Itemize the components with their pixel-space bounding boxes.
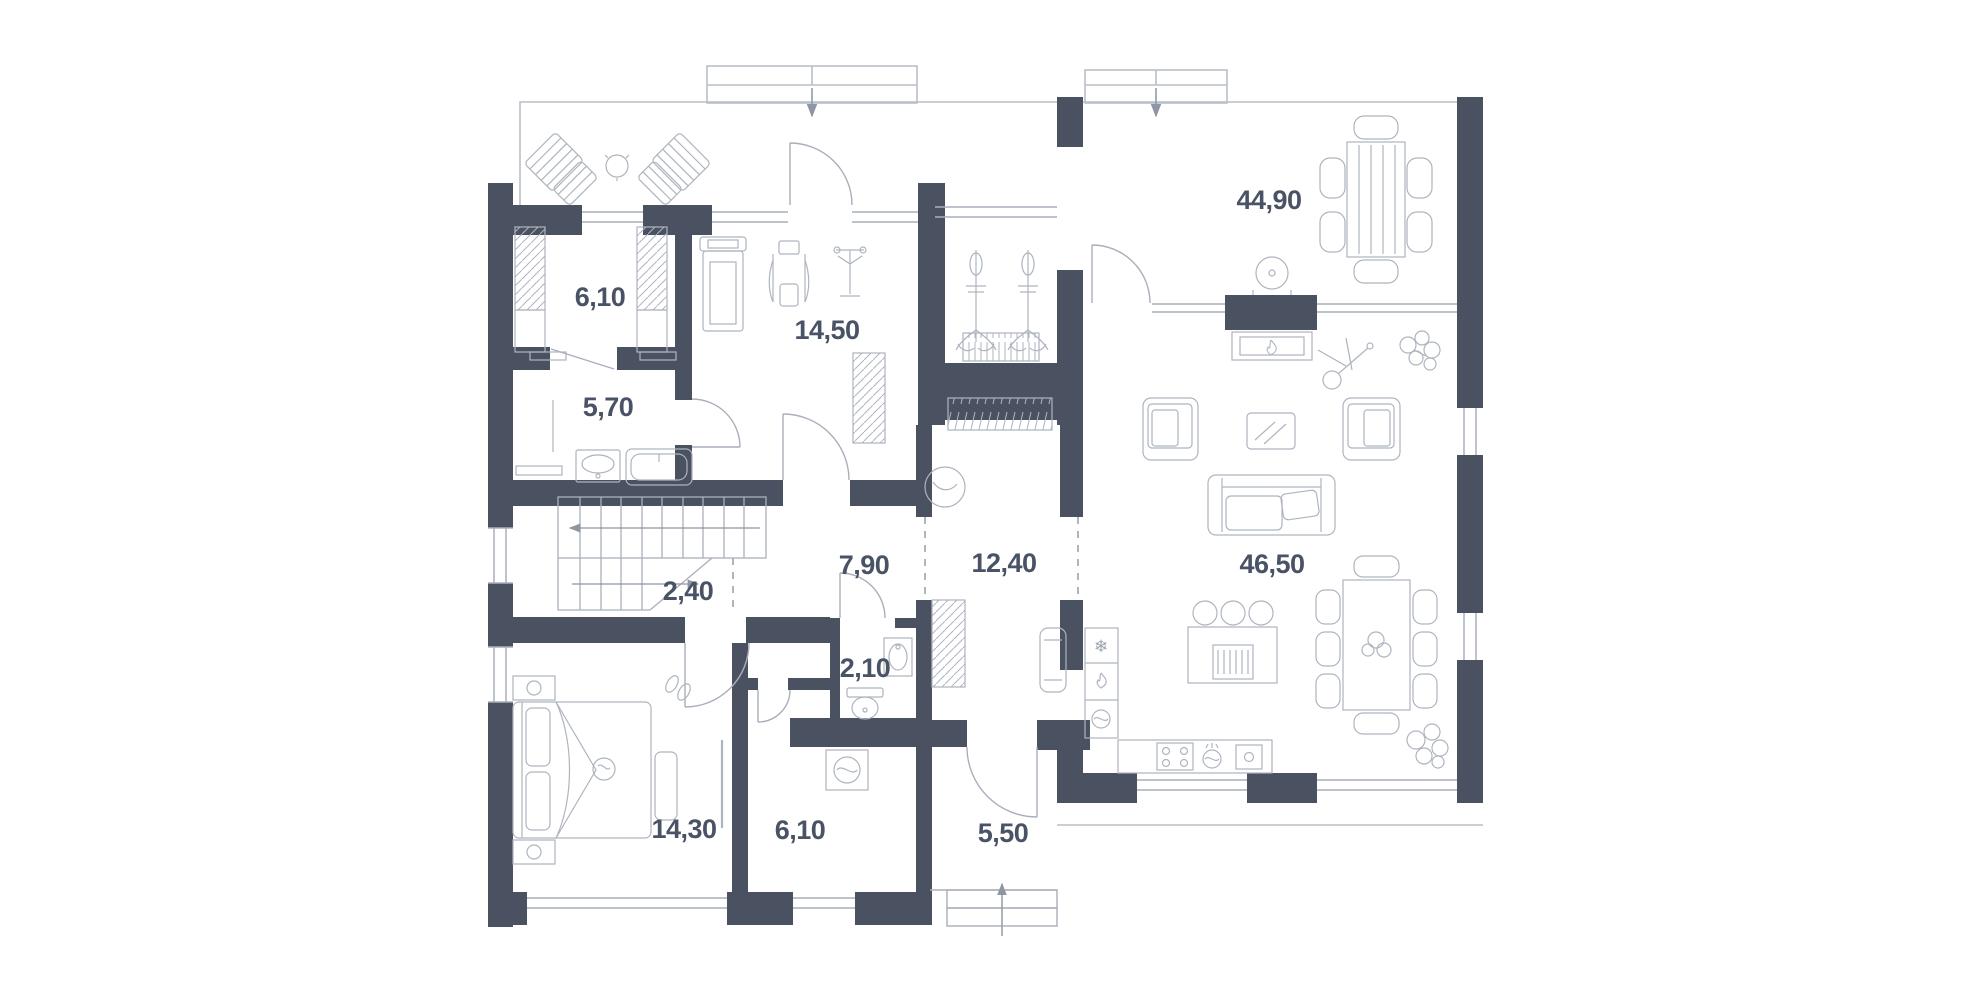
chair <box>1413 590 1437 624</box>
kitchen-furniture <box>1085 601 1448 773</box>
room-label-corridor: 12,40 <box>971 548 1036 578</box>
treadmill <box>700 237 746 331</box>
nightstand <box>513 840 555 864</box>
coffee-table <box>1247 413 1295 449</box>
chair <box>1316 632 1340 666</box>
chair <box>1354 260 1398 283</box>
corridor-wardrobe <box>932 600 965 687</box>
great-room-furniture <box>1232 116 1440 389</box>
corridor-furniture <box>925 398 1066 692</box>
exercise-machine <box>769 241 809 306</box>
terrace-table <box>606 155 628 177</box>
plant-icon <box>1400 331 1440 370</box>
heating-manifold <box>963 333 1039 361</box>
lower-bathroom-fixtures <box>826 750 868 790</box>
kitchen-counter <box>1118 740 1272 773</box>
kitchen-sink-icon <box>1236 745 1262 769</box>
chair <box>1407 212 1432 252</box>
room-label-dressing: 6,10 <box>575 282 626 312</box>
chair <box>1316 674 1340 708</box>
coat-rack <box>948 398 1052 430</box>
bed <box>513 702 651 838</box>
sun-lounger <box>636 132 711 207</box>
floor-plan-canvas: 6,10 14,50 5,70 44,90 2,40 7,90 12,40 46… <box>0 0 1980 990</box>
pendant-lamp <box>1253 257 1291 295</box>
room-label-hall: 7,90 <box>839 550 890 580</box>
chair <box>1354 713 1399 734</box>
cardio-alcove <box>956 250 1048 361</box>
pillow <box>526 772 550 830</box>
kitchen-island <box>1188 601 1277 683</box>
bench <box>655 752 677 820</box>
bar-stool <box>1249 601 1273 625</box>
oven-flame-icon <box>1097 673 1106 688</box>
room-label-bathroom-upper: 5,70 <box>583 392 634 422</box>
chair <box>1407 158 1432 198</box>
chair <box>1320 158 1345 198</box>
living-room-furniture <box>1143 398 1400 535</box>
dining-table-large <box>1320 116 1432 283</box>
chair <box>1413 632 1437 666</box>
chair <box>1354 556 1399 577</box>
terrace-furniture <box>524 132 711 207</box>
nightstand <box>513 676 555 700</box>
armchair <box>1143 398 1198 460</box>
chair <box>1354 116 1398 139</box>
armchair <box>1343 398 1400 460</box>
bar-stool <box>1193 601 1217 625</box>
pillow <box>526 708 550 766</box>
chair <box>1320 212 1345 252</box>
cooktop-icon <box>1157 743 1193 770</box>
room-label-bathroom-lower: 6,10 <box>775 815 826 845</box>
sofa <box>1208 475 1335 535</box>
room-label-living-kitchen: 46,50 <box>1239 549 1304 579</box>
dining-table-small <box>1316 556 1437 734</box>
fridge-snowflake-icon: ❄ <box>1094 637 1108 657</box>
entry-steps <box>930 884 1057 936</box>
washing-machine-icon <box>826 750 868 790</box>
floor-plan-page: 6,10 14,50 5,70 44,90 2,40 7,90 12,40 46… <box>0 0 1980 990</box>
weight-station <box>834 247 866 296</box>
radiator <box>516 466 562 475</box>
room-label-entry: 5,50 <box>978 818 1029 848</box>
bar-stool <box>1221 601 1245 625</box>
plant-icon <box>1407 724 1448 768</box>
room-label-great-room: 44,90 <box>1236 185 1301 215</box>
toilet-icon <box>847 688 883 719</box>
room-label-stair-hall: 2,40 <box>663 576 714 606</box>
table-lamp <box>527 845 541 859</box>
chair <box>1316 590 1340 624</box>
sun-lounger <box>524 132 599 207</box>
table-lamp <box>527 681 541 695</box>
fireplace-icon <box>1232 332 1312 360</box>
room-label-bedroom: 14,30 <box>651 814 716 844</box>
floor-lamp <box>1318 338 1373 389</box>
terrace-outline <box>520 66 1483 825</box>
room-label-gym: 14,50 <box>794 315 859 345</box>
gym-wardrobe <box>853 353 885 443</box>
chair <box>1413 674 1437 708</box>
room-label-wc: 2,10 <box>840 653 891 683</box>
